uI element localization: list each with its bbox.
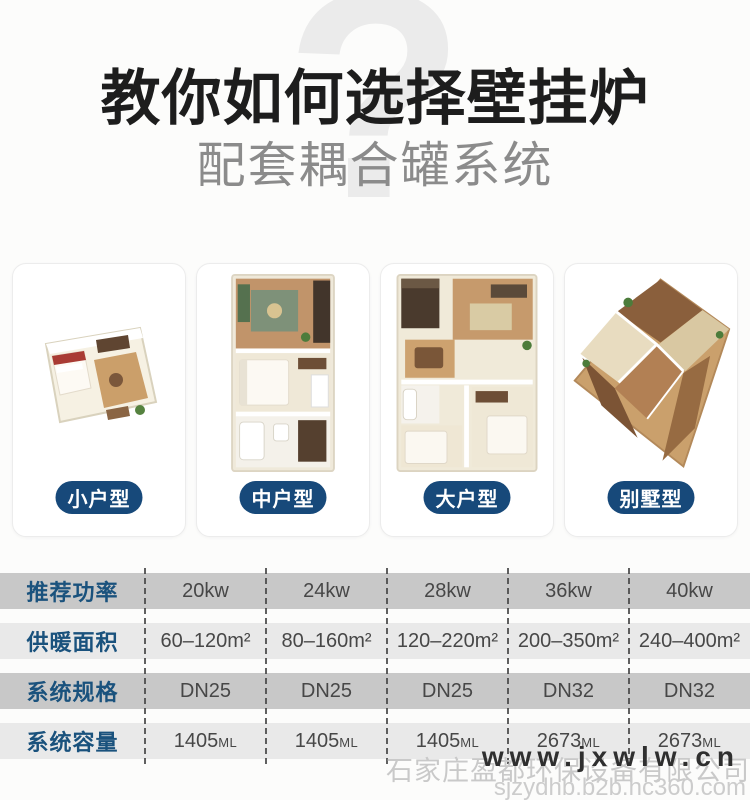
row-label-capacity: 系统容量 bbox=[0, 725, 145, 757]
spec-cell: DN25 bbox=[145, 680, 266, 703]
power-cell: 20kw bbox=[145, 580, 266, 603]
header: ? 教你如何选择壁挂炉 配套耦合罐系统 bbox=[0, 0, 750, 240]
floorplan-medium-image bbox=[227, 273, 339, 473]
capacity-unit: ML bbox=[460, 735, 479, 750]
floorplan-villa-image bbox=[569, 274, 733, 472]
row-label-area: 供暖面积 bbox=[0, 625, 145, 657]
floorplan-large-wrap bbox=[385, 272, 549, 474]
area-cell: 240–400m² bbox=[629, 630, 750, 653]
spec-cell: DN25 bbox=[266, 680, 387, 703]
house-type-cards: 小户型 bbox=[12, 263, 738, 537]
spec-table: 推荐功率 20kw 24kw 28kw 36kw 40kw 供暖面积 60–12… bbox=[0, 573, 750, 759]
capacity-cell: 1405ML bbox=[145, 730, 266, 753]
spec-row-power: 推荐功率 20kw 24kw 28kw 36kw 40kw bbox=[0, 573, 750, 609]
house-card-large: 大户型 bbox=[380, 263, 554, 537]
floorplan-small-wrap bbox=[17, 272, 181, 474]
column-divider bbox=[265, 568, 267, 764]
house-type-badge-small: 小户型 bbox=[56, 481, 143, 514]
house-card-villa: 别墅型 bbox=[564, 263, 738, 537]
spec-cell: DN32 bbox=[508, 680, 629, 703]
house-card-medium: 中户型 bbox=[196, 263, 370, 537]
spec-row-spec: 系统规格 DN25 DN25 DN25 DN32 DN32 bbox=[0, 673, 750, 709]
area-cell: 60–120m² bbox=[145, 630, 266, 653]
floorplan-medium-wrap bbox=[201, 272, 365, 474]
capacity-unit: ML bbox=[218, 735, 237, 750]
house-type-badge-villa: 别墅型 bbox=[608, 481, 695, 514]
column-divider bbox=[507, 568, 509, 764]
floorplan-villa-wrap bbox=[569, 272, 733, 474]
floorplan-large-image bbox=[392, 273, 542, 473]
promo-page: ? 教你如何选择壁挂炉 配套耦合罐系统 小户型 bbox=[0, 0, 750, 800]
house-type-badge-large: 大户型 bbox=[424, 481, 511, 514]
spec-cell: DN32 bbox=[629, 680, 750, 703]
area-cell: 200–350m² bbox=[508, 630, 629, 653]
capacity-value: 1405 bbox=[174, 730, 219, 752]
floorplan-small-image bbox=[36, 318, 162, 428]
house-type-badge-medium: 中户型 bbox=[240, 481, 327, 514]
capacity-value: 1405 bbox=[295, 730, 340, 752]
power-cell: 36kw bbox=[508, 580, 629, 603]
page-title: 教你如何选择壁挂炉 bbox=[0, 50, 750, 137]
store-url-watermark: sjzydhb.b2b.hc360.com bbox=[494, 774, 746, 800]
column-divider bbox=[386, 568, 388, 764]
capacity-cell: 1405ML bbox=[266, 730, 387, 753]
column-divider bbox=[144, 568, 146, 764]
power-cell: 24kw bbox=[266, 580, 387, 603]
row-label-power: 推荐功率 bbox=[0, 575, 145, 607]
house-card-small: 小户型 bbox=[12, 263, 186, 537]
page-subtitle: 配套耦合罐系统 bbox=[0, 126, 750, 197]
power-cell: 28kw bbox=[387, 580, 508, 603]
capacity-unit: ML bbox=[339, 735, 358, 750]
area-cell: 80–160m² bbox=[266, 630, 387, 653]
power-cell: 40kw bbox=[629, 580, 750, 603]
column-divider bbox=[628, 568, 630, 764]
row-label-spec: 系统规格 bbox=[0, 675, 145, 707]
area-cell: 120–220m² bbox=[387, 630, 508, 653]
site-watermark: www.jxwlw.cn bbox=[482, 741, 740, 773]
spec-row-area: 供暖面积 60–120m² 80–160m² 120–220m² 200–350… bbox=[0, 623, 750, 659]
spec-cell: DN25 bbox=[387, 680, 508, 703]
